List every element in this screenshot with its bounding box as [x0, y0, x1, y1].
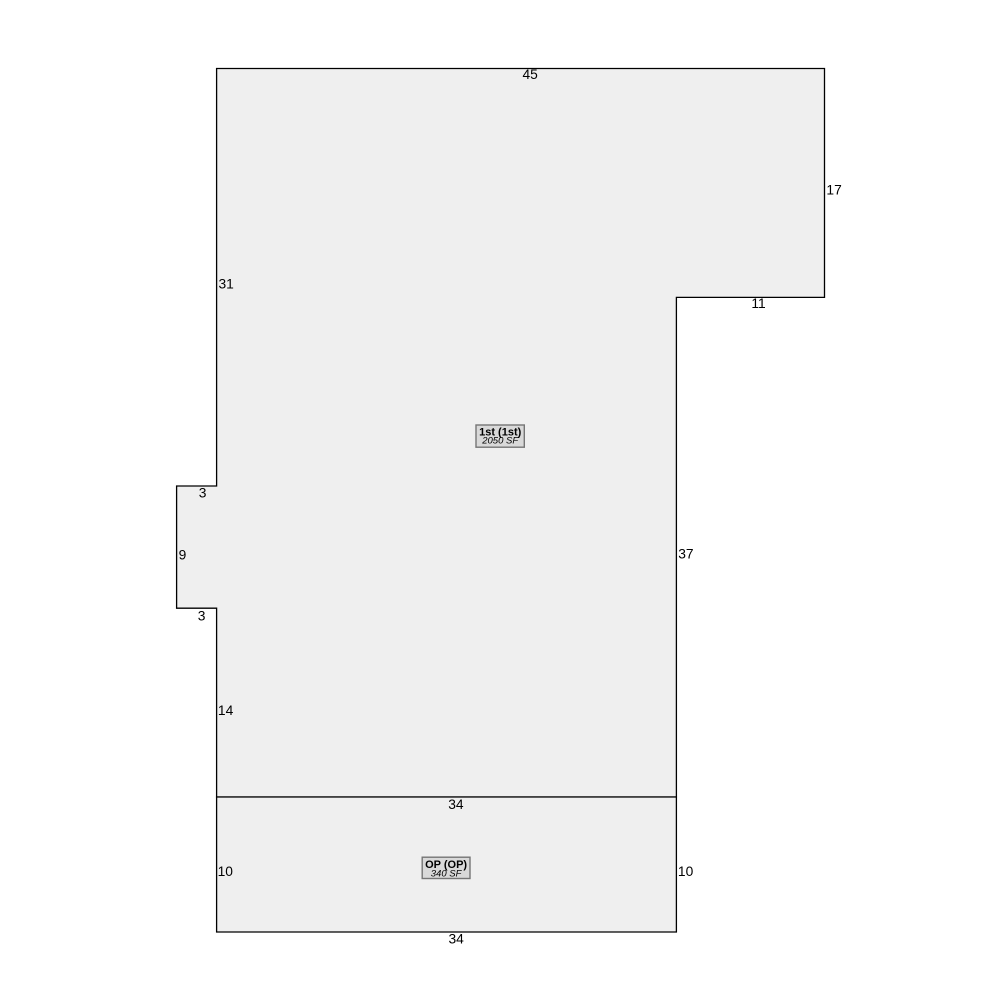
svg-text:10: 10 [678, 864, 694, 879]
svg-text:37: 37 [678, 547, 693, 562]
svg-text:34: 34 [448, 797, 464, 812]
svg-text:9: 9 [179, 547, 187, 562]
svg-text:31: 31 [219, 277, 234, 292]
svg-text:2050 SF: 2050 SF [481, 436, 519, 447]
svg-text:45: 45 [523, 67, 539, 82]
svg-text:17: 17 [826, 182, 841, 197]
svg-text:10: 10 [218, 864, 234, 879]
svg-text:34: 34 [449, 932, 465, 947]
svg-text:11: 11 [751, 296, 765, 311]
svg-text:3: 3 [199, 486, 207, 501]
svg-text:14: 14 [218, 703, 234, 718]
svg-text:340 SF: 340 SF [431, 869, 463, 880]
svg-text:3: 3 [198, 609, 206, 624]
